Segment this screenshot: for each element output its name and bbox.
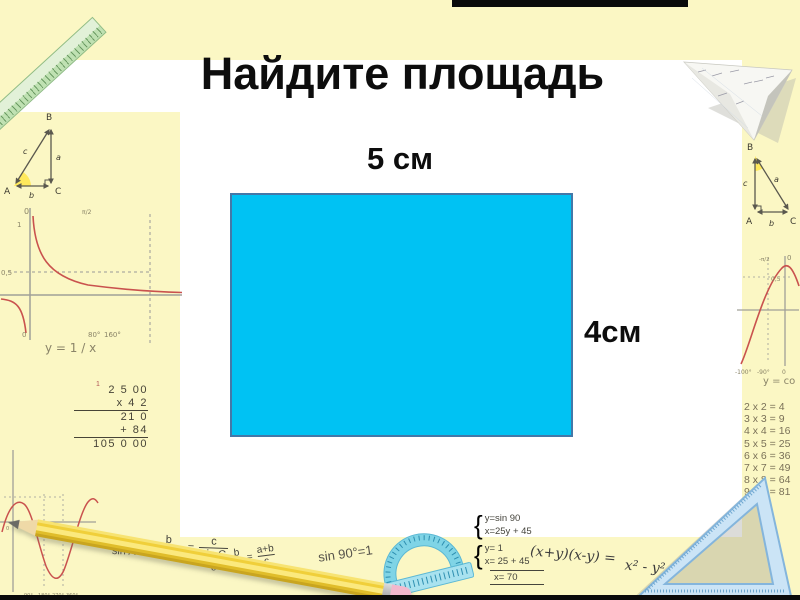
right-triangle-diagram-left: A B C a b c xyxy=(2,110,87,202)
system-line: y= 1 xyxy=(485,542,530,555)
hyperbola-graph: 0 1 0,5 π/2 0 80° 160° y = 1 / x xyxy=(0,200,185,360)
tick-half: 0,5 xyxy=(771,276,781,283)
angle-wedge xyxy=(755,156,763,171)
table-row: 6 x 6 = 36 xyxy=(744,450,790,462)
bottom-black-bar xyxy=(0,595,800,600)
tick-m100: -100° xyxy=(735,369,752,376)
vertex-label-B: B xyxy=(46,113,52,123)
tick-zero: 0 xyxy=(787,254,791,262)
system-1: { y=sin 90 x=25y + 45 xyxy=(474,512,544,538)
hyperbola-curve-upper xyxy=(33,216,182,293)
cosine-title: y = co xyxy=(763,376,795,387)
tick-pi-half: π/2 xyxy=(82,209,92,216)
sine-identity: sin 90°=1 xyxy=(317,542,373,564)
system-result: x= 70 xyxy=(490,570,544,585)
top-black-bar xyxy=(452,0,688,7)
side-label-c: c xyxy=(743,179,748,188)
vertex-label-A: A xyxy=(4,187,11,197)
table-row: 3 x 3 = 9 xyxy=(744,413,790,425)
system-line: y=sin 90 xyxy=(485,512,532,525)
vertex-label-A: A xyxy=(746,217,753,227)
system-line: x=25y + 45 xyxy=(485,525,532,538)
cosine-graph: -π/2 0 0,5 -100° -90° 0 y = co xyxy=(735,248,800,388)
vertex-label-C: C xyxy=(790,217,796,227)
right-triangle-diagram-right: B A C c a b xyxy=(733,136,800,232)
width-dimension-label: 5 см xyxy=(328,141,472,177)
tick-80: 80° xyxy=(88,331,100,339)
long-mult-line: 2 5 00 xyxy=(74,384,148,397)
vertex-label-C: C xyxy=(55,187,61,197)
page-title: Найдите площадь xyxy=(180,48,625,100)
side-label-a: a xyxy=(774,175,779,184)
tick-half: 0,5 xyxy=(1,269,12,277)
long-mult-line: + 84 xyxy=(74,424,148,437)
long-mult-line: x 4 2 xyxy=(74,397,148,410)
right-angle-mark xyxy=(755,206,761,212)
system-line: x= 25 + 45 xyxy=(485,555,530,568)
tick-160: 160° xyxy=(104,331,121,339)
cosine-curve xyxy=(741,266,799,364)
height-dimension-label: 4см xyxy=(584,314,641,350)
carry-digit: 1 xyxy=(96,378,100,391)
area-rectangle xyxy=(230,193,573,437)
table-row: 4 x 4 = 16 xyxy=(744,425,790,437)
long-mult-line: 21 0 xyxy=(74,410,148,424)
numerator: c xyxy=(199,535,228,548)
tick-origin: 0 xyxy=(782,369,786,376)
tick-pi-half: -π/2 xyxy=(759,257,770,263)
angle-wedge xyxy=(14,172,31,186)
hyperbola-title: y = 1 / x xyxy=(45,341,96,355)
tick-origin: 0 xyxy=(22,331,26,339)
set-square-icon xyxy=(625,468,800,600)
table-row: 5 x 5 = 25 xyxy=(744,438,790,450)
tick-one: 1 xyxy=(17,221,21,229)
side-label-c: c xyxy=(23,147,28,156)
right-angle-mark xyxy=(45,180,51,186)
tick-zero: 0 xyxy=(24,207,29,216)
vertex-label-B: B xyxy=(747,143,753,153)
side-label-b: b xyxy=(769,219,774,228)
side-label-a: a xyxy=(56,153,61,162)
brace: { xyxy=(474,549,483,562)
slide: Найдите площадь 5 см 4см A B C a b c 0 1… xyxy=(0,0,800,600)
pencil-lead xyxy=(6,514,20,533)
table-row: 2 x 2 = 4 xyxy=(744,401,790,413)
tick-m90: -90° xyxy=(757,369,770,376)
side-label-b: b xyxy=(29,191,34,200)
brace: { xyxy=(474,519,483,532)
hyperbola-curve-lower xyxy=(1,299,26,333)
